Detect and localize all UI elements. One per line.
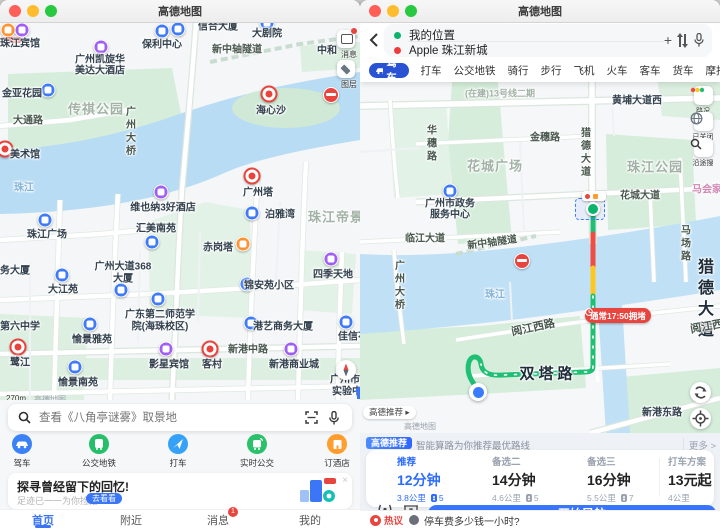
map-label[interactable]: 影星宾馆 (149, 356, 189, 371)
tab-nearby[interactable]: 附近 (120, 512, 142, 528)
traffic-light-icon (694, 86, 713, 105)
route-option-alt2[interactable]: 备选二 14分钟 4.6公里5 (492, 454, 539, 504)
add-waypoint-icon[interactable]: + (664, 32, 672, 48)
close-window-button[interactable] (9, 5, 21, 17)
option-tag: 备选二 (492, 454, 539, 468)
microphone-icon[interactable] (328, 411, 340, 425)
metro-station-pin[interactable] (261, 86, 278, 103)
route-results-sheet: 高德推荐 智能算路为你推荐最优路线 更多 > 推荐 12分钟 3.8公里5 备选… (360, 433, 720, 529)
map-label[interactable]: 中和 (317, 42, 337, 57)
banner-cta-button[interactable]: 去看看 (86, 493, 122, 504)
globe-icon (694, 112, 713, 131)
transport-mode-tabs: 驾车 打车 公交地铁 骑行 步行 飞机 火车 客车 货车 摩托车 新能源 (360, 59, 720, 81)
avatar (409, 515, 419, 525)
map-water-label: 珠江 (485, 286, 505, 301)
map-road-label: 新港中路 (228, 341, 268, 356)
mode-truck[interactable]: 货车 (673, 63, 694, 78)
map-label[interactable]: 四季天地 (313, 266, 353, 281)
tab-messages[interactable]: 消息 (207, 512, 229, 528)
layers-button[interactable] (337, 60, 355, 78)
route-inputs: 我的位置 Apple 珠江新城 + (384, 24, 712, 57)
banner-close-icon[interactable]: × (342, 475, 348, 486)
map-road-label: 新中轴隧道 (212, 41, 262, 56)
map-area-label: 花城广场 (467, 156, 523, 175)
banner-illustration (296, 476, 338, 506)
end-marker-core (473, 387, 484, 398)
map-label[interactable]: 港艺商务大厦 (253, 318, 313, 333)
mode-train[interactable]: 火车 (607, 63, 628, 78)
origin-field[interactable]: 我的位置 (394, 28, 668, 42)
mode-flight[interactable]: 飞机 (574, 63, 595, 78)
amap-recommend-pill[interactable]: 高德推荐 ▸ (363, 406, 416, 419)
traffic-eta-pill: 通常17:50拥堵 (585, 308, 651, 323)
compass-icon (336, 360, 356, 380)
qa-strip[interactable]: 热议 停车费多少钱一小时? (360, 510, 720, 529)
layers-icon (340, 64, 350, 74)
destination-dot-icon (394, 47, 401, 54)
mode-motorcycle[interactable]: 摩托车 (706, 63, 720, 78)
map-road-label: 金穗路 (530, 129, 560, 144)
option-detail: 4.6公里5 (492, 492, 539, 504)
messages-button-label: 消息 (341, 49, 357, 60)
poi-pin[interactable] (68, 360, 83, 375)
route-input-sheet: 我的位置 Apple 珠江新城 + 驾车 打车 公交地铁 骑行 步行 飞机 火车… (360, 22, 720, 82)
poi-pin[interactable] (245, 206, 260, 221)
mode-cycling[interactable]: 骑行 (508, 63, 529, 78)
map-label[interactable]: 广州塔 (243, 184, 273, 199)
map-label[interactable]: 第六中学 (0, 318, 40, 333)
destination-value: Apple 珠江新城 (409, 42, 488, 58)
origin-dot-icon (394, 32, 401, 39)
option-time: 13元起 (668, 470, 712, 490)
zoom-window-button[interactable] (405, 5, 417, 17)
option-tag: 备选三 (587, 454, 634, 468)
right-map[interactable]: (在建)13号线二期 黄埔大道西 华穗路 金穗路 花城广场 猎德大道 珠江公园 … (360, 82, 720, 433)
map-label[interactable]: 大厦 (113, 270, 133, 285)
window-title: 高德地图 (518, 3, 562, 19)
map-water-label: 珠江 (14, 179, 34, 194)
microphone-icon[interactable] (694, 33, 704, 47)
map-label[interactable]: 赤岗塔 (203, 239, 233, 254)
window-title: 高德地图 (158, 3, 202, 19)
option-tag: 推荐 (397, 454, 444, 468)
route-start-marker[interactable] (586, 202, 600, 216)
map-road-label: 黄埔大道西 (612, 92, 662, 107)
option-tag: 打车方案 (668, 454, 712, 468)
notification-dot (351, 28, 357, 34)
map-label[interactable]: 鹭江 (10, 354, 30, 369)
tab-mine[interactable]: 我的 (299, 512, 321, 528)
origin-poi-callout[interactable] (582, 191, 606, 201)
callout-dot (593, 194, 598, 199)
left-window: 高德地图 (0, 0, 360, 529)
quick-action-label: 订酒店 (324, 457, 350, 469)
map-label[interactable]: 务大厦 (0, 262, 30, 277)
map-area-label: 珠江帝景 (308, 207, 360, 226)
map-road-label: 花城大道 (620, 187, 660, 202)
route-option-recommended[interactable]: 推荐 12分钟 3.8公里5 (397, 454, 444, 504)
map-road-label: 临江大道 (405, 230, 445, 245)
tab-bar: 首页 附近 消息 1 我的 (0, 509, 360, 529)
option-time: 14分钟 (492, 470, 539, 490)
map-road-label-highlight: 双塔路 (519, 363, 576, 384)
metro-station-pin[interactable] (244, 168, 261, 185)
mode-drive[interactable]: 驾车 (369, 63, 409, 78)
hot-topic-icon (370, 515, 381, 526)
route-options-card: 推荐 12分钟 3.8公里5 备选二 14分钟 4.6公里5 备选三 16分钟 … (366, 450, 714, 507)
map-label[interactable]: 锦安苑小区 (244, 277, 294, 292)
search-along-route-button[interactable]: 沿途搜 (690, 138, 716, 168)
poi-pin[interactable] (284, 342, 299, 357)
search-icon (18, 411, 31, 424)
option-detail: 3.8公里5 (397, 492, 444, 504)
promo-banner[interactable]: 探寻曾经留下的回忆! 足迹已一一为你捡拾... 去看看 × (8, 473, 352, 509)
mode-transit[interactable]: 公交地铁 (454, 63, 496, 78)
quick-action-label: 打车 (169, 457, 186, 469)
right-titlebar: 高德地图 (360, 0, 720, 23)
quick-action-realtime-bus[interactable]: 实时公交 (222, 434, 292, 469)
map-label[interactable]: 美达大酒店 (75, 62, 125, 77)
map-label[interactable]: 珠江宾馆 (0, 35, 40, 50)
paper-plane-icon (168, 434, 188, 454)
clock-icon (585, 308, 593, 316)
map-label[interactable]: 珠江广场 (27, 226, 67, 241)
active-tab-underline (35, 525, 51, 528)
map-road-label: 猎德大道 (577, 127, 592, 179)
zoom-window-button[interactable] (45, 5, 57, 17)
hot-topic-tag: 热议 (384, 513, 403, 527)
map-label[interactable]: 美术馆 (10, 146, 40, 161)
search-bar[interactable] (8, 404, 352, 431)
map-label[interactable]: 马会家 (692, 181, 720, 196)
option-detail: 5.5公里7 (587, 492, 634, 504)
layers-button-label: 图层 (341, 79, 357, 90)
map-area-label: 传祺公园 (68, 99, 124, 118)
map-road-label: 广州大桥 (391, 260, 406, 312)
close-window-button[interactable] (369, 5, 381, 17)
left-bottom-panel: 驾车 公交地铁 打车 实时公交 订酒店 探寻曾经留下的回忆! 足迹已一一为你捡拾… (0, 400, 360, 529)
option-divider (659, 458, 660, 496)
map-watermark: 高德地图 (404, 421, 436, 432)
scan-icon[interactable] (305, 411, 318, 424)
destination-field[interactable]: Apple 珠江新城 (394, 43, 668, 57)
poi-pin-landmark[interactable] (236, 237, 251, 252)
qa-question[interactable]: 停车费多少钱一小时? (424, 513, 520, 528)
option-detail: 4公里 (668, 492, 712, 504)
map-label[interactable]: 金亚花园 (2, 85, 42, 100)
map-label[interactable]: 海心沙 (256, 102, 286, 117)
map-label[interactable]: 客村 (202, 356, 222, 371)
poi-pin[interactable] (324, 252, 339, 267)
traffic-light-icon (431, 494, 437, 502)
map-label[interactable]: 新港商业城 (269, 356, 319, 371)
poi-pin-hotel[interactable] (159, 342, 174, 357)
traffic-light-icon (621, 494, 627, 502)
poi-pin-school[interactable] (151, 292, 166, 307)
map-road-label: 大通路 (13, 112, 43, 127)
map-road-label: 马场路 (677, 225, 692, 264)
map-road-label: 广州大桥 (122, 106, 137, 158)
map-label[interactable]: 服务中心 (430, 206, 470, 221)
chat-bubble-icon (341, 34, 353, 44)
compass-button[interactable] (336, 360, 356, 380)
route-option-alt3[interactable]: 备选三 16分钟 5.5公里7 (587, 454, 634, 504)
messages-button[interactable] (337, 30, 355, 48)
minimize-window-button[interactable] (27, 5, 39, 17)
poi-pin[interactable] (41, 83, 56, 98)
map-label[interactable]: 泊雅湾 (265, 206, 295, 221)
crosshair-icon (690, 408, 711, 429)
map-label[interactable]: 信合大厦 (198, 22, 238, 33)
quick-action-taxi[interactable]: 打车 (143, 434, 213, 469)
realtime-bus-icon (247, 434, 267, 454)
poi-pin[interactable] (114, 283, 129, 298)
poi-pin-hotel[interactable] (154, 185, 169, 200)
left-titlebar: 高德地图 (0, 0, 360, 23)
search-input[interactable] (37, 411, 305, 425)
map-label[interactable]: 愉景雅苑 (72, 331, 112, 346)
refresh-route-button[interactable] (690, 382, 711, 403)
bus-icon (89, 434, 109, 454)
right-window: 高德地图 (360, 0, 720, 529)
hotel-icon (327, 434, 347, 454)
mode-coach[interactable]: 客车 (640, 63, 661, 78)
map-label[interactable]: 保利中心 (142, 36, 182, 51)
map-road-label: 新港东路 (642, 404, 682, 419)
left-map[interactable]: 珠江宾馆 广州凯旋华 美达大酒店 保利中心 信合大厦 新中轴隧道 大剧院 中和 … (0, 22, 360, 400)
option-time: 12分钟 (397, 470, 444, 490)
map-label[interactable]: 汇美南苑 (136, 220, 176, 235)
no-entry-icon (514, 253, 530, 269)
poi-pin[interactable] (171, 22, 186, 37)
up-arrow-icon (352, 386, 360, 400)
quick-action-transit[interactable]: 公交地铁 (64, 434, 134, 469)
quick-action-label: 公交地铁 (82, 457, 116, 469)
mode-walking[interactable]: 步行 (541, 63, 562, 78)
back-icon[interactable] (368, 32, 380, 48)
locate-button[interactable] (690, 408, 711, 429)
mode-taxi[interactable]: 打车 (421, 63, 442, 78)
quick-action-label: 实时公交 (240, 457, 274, 469)
minimize-window-button[interactable] (387, 5, 399, 17)
swap-icon[interactable] (677, 33, 688, 48)
car-icon (12, 434, 32, 454)
map-label[interactable]: 大剧院 (252, 25, 282, 40)
refresh-icon (690, 382, 711, 403)
map-road-label: 华穗路 (423, 125, 438, 164)
map-label[interactable]: 佳信花 (338, 328, 360, 343)
callout-dot (585, 194, 590, 199)
map-label: (在建)13号线二期 (465, 87, 535, 100)
quick-action-label: 驾车 (13, 457, 30, 469)
quick-action-drive[interactable]: 驾车 (0, 434, 57, 469)
car-icon (375, 66, 383, 75)
map-label[interactable]: 院(海珠校区) (132, 318, 189, 333)
route-option-taxi-plan[interactable]: 打车方案 13元起 4公里 (668, 454, 712, 504)
messages-badge: 1 (228, 507, 238, 517)
recommend-badge: 高德推荐 (366, 437, 412, 449)
poi-pin[interactable] (145, 235, 160, 250)
quick-action-hotel[interactable]: 订酒店 (302, 434, 360, 469)
map-label[interactable]: 愉景南苑 (58, 374, 98, 389)
tool-label: 沿途搜 (693, 158, 714, 168)
no-entry-icon (323, 87, 339, 103)
traffic-light-icon (526, 494, 532, 502)
search-icon (694, 138, 713, 157)
poi-pin[interactable] (83, 317, 98, 332)
route-end-marker[interactable] (469, 383, 487, 401)
option-time: 16分钟 (587, 470, 634, 490)
map-label[interactable]: 大江苑 (48, 281, 78, 296)
map-label[interactable]: 维也纳3好酒店 (130, 199, 196, 214)
map-area-label: 珠江公园 (627, 157, 683, 176)
